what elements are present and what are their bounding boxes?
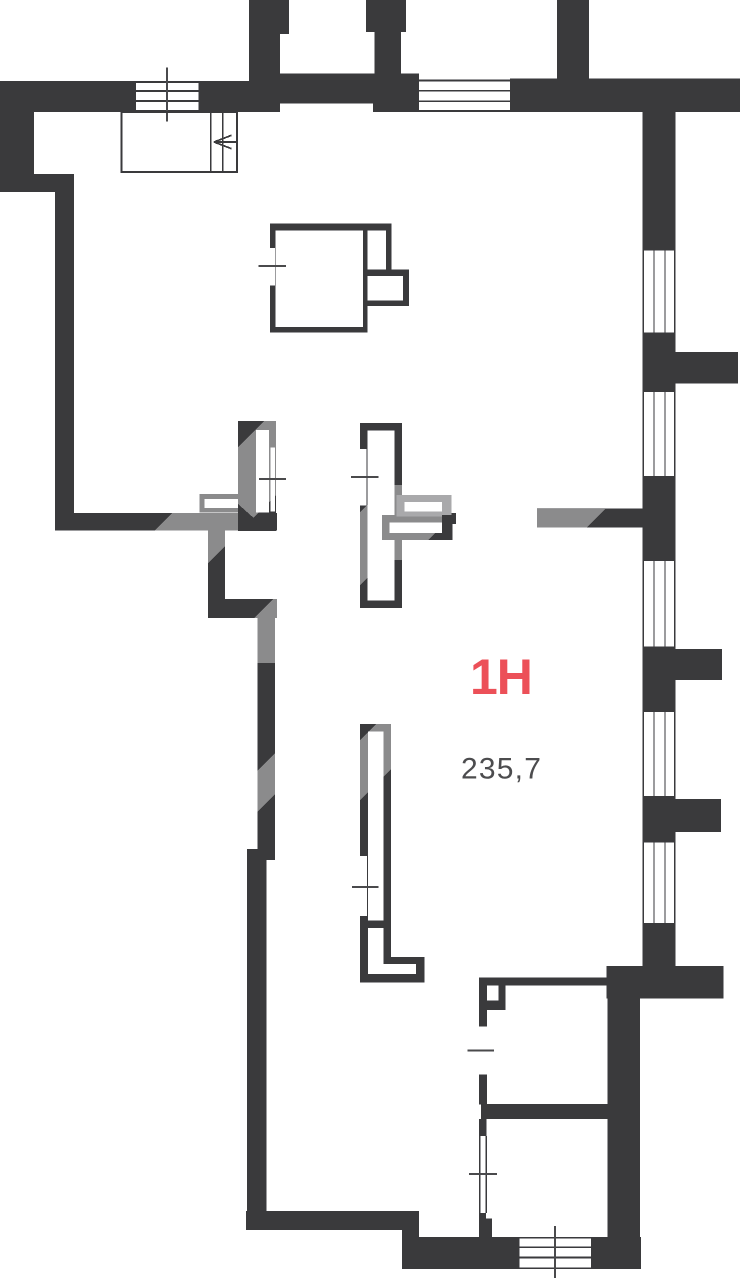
svg-text:235,7: 235,7 (461, 753, 542, 786)
svg-text:1Н: 1Н (470, 649, 532, 705)
